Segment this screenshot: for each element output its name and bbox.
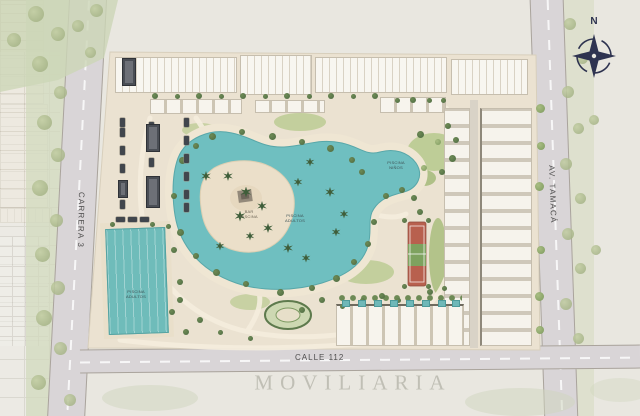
tree (175, 94, 180, 99)
palm-tree (332, 228, 341, 237)
tree (328, 93, 334, 99)
tree (535, 292, 544, 301)
service-kiosk (118, 180, 128, 198)
unit-plunge-pool (422, 300, 430, 307)
tree (177, 229, 184, 236)
parked-car (116, 217, 125, 222)
street-label-carrera-3: CARRERA 3 (76, 192, 86, 248)
tree (417, 209, 423, 215)
tree (263, 94, 268, 99)
tree (90, 4, 103, 17)
palm-tree (340, 210, 349, 219)
tree (359, 169, 365, 175)
tree (411, 195, 417, 201)
palm-tree (257, 201, 267, 211)
tree (427, 289, 433, 295)
palm-tree (306, 158, 315, 167)
tree (399, 187, 405, 193)
tree (349, 157, 355, 163)
tree (37, 115, 52, 130)
label-lap-pool: PISCINA ADULTOS (126, 290, 146, 299)
tree (439, 169, 445, 175)
tree (32, 180, 48, 196)
parked-car (128, 217, 137, 222)
tree (299, 139, 305, 145)
compass-rose: N (563, 18, 625, 84)
tree (537, 246, 545, 254)
tree (421, 165, 427, 171)
parked-car (184, 172, 189, 181)
watermark-text: MOVILIARIA (254, 371, 451, 396)
site-plan-canvas: BAR PISCINA PISCINA ADULTOS PISCINA NIÑO… (0, 0, 640, 416)
tree (277, 289, 284, 296)
parked-car (120, 200, 125, 209)
parked-car (140, 217, 149, 222)
tree (309, 285, 315, 291)
tree (573, 333, 584, 344)
tree (307, 94, 312, 99)
tree (402, 218, 407, 223)
unit-plunge-pool (390, 300, 398, 307)
tree (54, 342, 67, 355)
tree (426, 218, 431, 223)
parked-car (184, 190, 189, 199)
parked-car (149, 158, 154, 167)
tree (372, 93, 378, 99)
tree (209, 133, 216, 140)
tree (435, 139, 441, 145)
tree (85, 47, 96, 58)
tree (150, 222, 155, 227)
palm-tree (241, 187, 252, 198)
street-label-calle-112: CALLE 112 (295, 353, 344, 362)
tree (379, 293, 385, 299)
tree (196, 93, 202, 99)
tree (536, 104, 545, 113)
palm-tree (294, 178, 303, 187)
parked-car (184, 154, 189, 163)
unit-plunge-pool (438, 300, 446, 307)
label-kids-pool: PISCINA NIÑOS (387, 161, 404, 170)
parked-car (120, 118, 125, 127)
tree (427, 98, 432, 103)
tree (395, 98, 400, 103)
tree (213, 269, 220, 276)
unit-plunge-pool (342, 300, 350, 307)
palm-tree (283, 243, 293, 253)
unit-plunge-pool (406, 300, 414, 307)
palm-tree (216, 242, 225, 251)
tree (351, 259, 357, 265)
tree (240, 93, 246, 99)
tree (243, 281, 249, 287)
tree (449, 155, 456, 162)
tree (152, 93, 158, 99)
tree (562, 86, 574, 98)
tree (299, 307, 305, 313)
label-main-pool: PISCINA ADULTOS (285, 214, 305, 223)
tree (219, 94, 224, 99)
service-kiosk (146, 124, 160, 152)
tree (560, 158, 572, 170)
tree (50, 214, 63, 227)
tree (410, 97, 416, 103)
tree (64, 394, 76, 406)
tree (248, 336, 253, 341)
tree (371, 219, 377, 225)
tree (402, 284, 407, 289)
palm-tree (263, 223, 273, 233)
tree (169, 309, 175, 315)
parked-car (120, 164, 125, 173)
tree (417, 131, 424, 138)
palm-tree (325, 187, 335, 197)
tree (562, 228, 574, 240)
tree (589, 115, 599, 125)
tree (193, 253, 199, 259)
tree (591, 245, 601, 255)
tree (166, 224, 171, 229)
tree (560, 298, 572, 310)
tree (35, 247, 50, 262)
tree (72, 20, 84, 32)
tree (573, 123, 584, 134)
parked-car (184, 136, 189, 145)
tree (453, 137, 459, 143)
tree (110, 222, 115, 227)
parked-car (184, 203, 189, 212)
tree (28, 6, 44, 22)
palm-tree (201, 171, 211, 181)
tree (319, 297, 325, 303)
parked-car (120, 128, 125, 137)
compass-star-icon (563, 18, 625, 84)
tree (197, 317, 203, 323)
tree (171, 247, 177, 253)
service-kiosk (122, 58, 136, 86)
tree (36, 310, 52, 326)
tree (54, 86, 67, 99)
tree (177, 279, 183, 285)
tree (239, 129, 245, 135)
tree (7, 33, 21, 47)
tree (445, 123, 451, 129)
tree (183, 329, 189, 335)
tree (218, 330, 223, 335)
unit-plunge-pool (374, 300, 382, 307)
unit-plunge-pool (452, 300, 460, 307)
compass-north-label: N (590, 16, 597, 27)
tree (177, 297, 183, 303)
tree (575, 193, 586, 204)
service-kiosk (146, 176, 160, 208)
tree (333, 275, 340, 282)
tree (327, 145, 334, 152)
tree (51, 148, 65, 162)
tree (269, 133, 276, 140)
unit-plunge-pool (358, 300, 366, 307)
tree (51, 27, 65, 41)
palm-tree (223, 171, 233, 181)
palm-tree (302, 254, 311, 263)
tree (441, 98, 446, 103)
label-pool-bar: BAR PISCINA (240, 210, 257, 219)
parked-car (184, 118, 189, 127)
tree (575, 263, 586, 274)
tree (426, 284, 431, 289)
parked-car (120, 146, 125, 155)
tree (536, 326, 544, 334)
tree (365, 241, 371, 247)
tree (284, 93, 290, 99)
tree (537, 142, 545, 150)
tree (442, 286, 447, 291)
tree (31, 375, 46, 390)
tree (351, 94, 356, 99)
tree (51, 281, 65, 295)
tree (383, 193, 389, 199)
tree (193, 143, 199, 149)
tree (535, 182, 544, 191)
palm-tree (246, 232, 255, 241)
tree (32, 56, 48, 72)
tree (171, 193, 177, 199)
